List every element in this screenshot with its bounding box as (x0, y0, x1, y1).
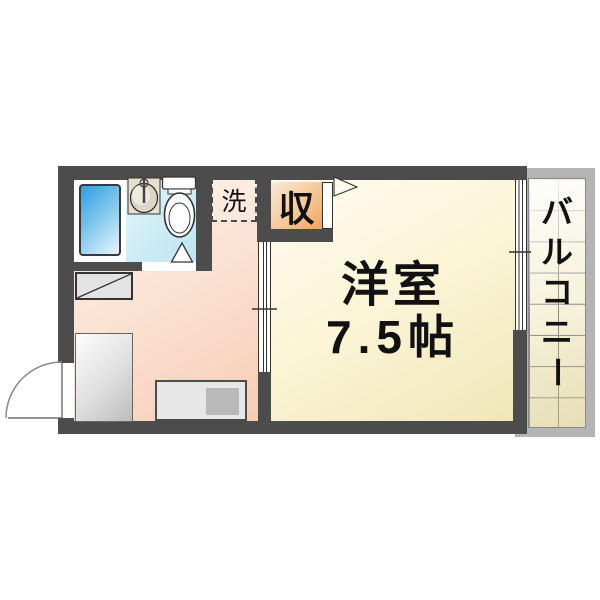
shoe-cabinet (75, 272, 133, 300)
stove (206, 388, 239, 415)
entrance-door-arc-icon (6, 362, 62, 418)
closet: 収 (271, 182, 322, 229)
bathtub (79, 184, 121, 256)
wall-closet-bottom (257, 229, 333, 242)
wall-left-upper (58, 166, 74, 363)
wall-bath-bottom (74, 262, 142, 271)
wall-bottom (58, 421, 527, 434)
bathroom-floor (126, 180, 196, 262)
main-room-label: 洋室 7.5帖 (271, 260, 515, 362)
closet-label: 収 (278, 180, 314, 232)
entrance-floor (75, 333, 133, 422)
wall-bath-right (196, 180, 212, 271)
balcony-label: バルコニー (528, 192, 586, 412)
balcony-window (515, 180, 527, 330)
closet-door (322, 182, 333, 229)
laundry-space: 洗 (211, 178, 257, 222)
sliding-door (258, 242, 271, 372)
wall-right-lower (513, 330, 527, 422)
main-room-size: 7.5帖 (271, 312, 515, 362)
floorplan-canvas: バルコニー 洗 収 洋室 7.5帖 (0, 0, 600, 600)
wall-top (58, 166, 527, 180)
main-room-name: 洋室 (271, 260, 515, 312)
wall-below-sliding-door (258, 372, 271, 421)
laundry-label: 洗 (221, 182, 246, 218)
bathroom-doorway (142, 262, 196, 271)
